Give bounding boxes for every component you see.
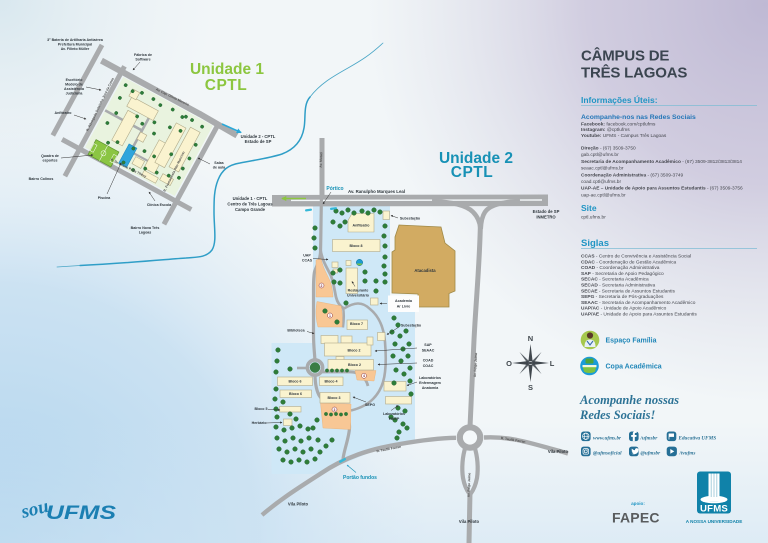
svg-text:Educativa UFMS: Educativa UFMS (678, 436, 717, 442)
svg-text:Clínica Escola: Clínica Escola (147, 203, 172, 207)
svg-text:CDAC - Coordenação de Gestão A: CDAC - Coordenação de Gestão Acadêmica (581, 259, 677, 265)
svg-text:Anatomia: Anatomia (422, 386, 439, 390)
svg-text:/tvufms: /tvufms (679, 451, 696, 457)
svg-text:Site: Site (581, 203, 597, 213)
svg-text:Academia: Academia (395, 299, 413, 303)
svg-text:3: 3 (334, 408, 336, 412)
svg-text:Redes Sociais!: Redes Sociais! (579, 408, 655, 422)
svg-text:Vila Piloto: Vila Piloto (459, 519, 480, 524)
svg-text:Direção - (67) 3509-3750: Direção - (67) 3509-3750 (581, 146, 636, 152)
svg-text:O: O (506, 359, 512, 368)
svg-text:Bairro Colinos: Bairro Colinos (29, 177, 54, 181)
svg-text:Bloco 2: Bloco 2 (348, 349, 361, 353)
svg-text:Facebook: facebook.com/cptlufm: Facebook: facebook.com/cptlufms (581, 122, 656, 128)
svg-text:4: 4 (363, 374, 365, 378)
svg-text:coad.cptl@ufms.br: coad.cptl@ufms.br (581, 179, 621, 185)
svg-text:TRÊS LAGOAS: TRÊS LAGOAS (581, 64, 687, 82)
svg-text:Assistência: Assistência (64, 87, 85, 91)
svg-text:Anfiteatro: Anfiteatro (55, 111, 73, 115)
svg-text:SAP - Secretaria de Apoio Peda: SAP - Secretaria de Apoio Pedagógico (581, 271, 664, 277)
svg-text:seaac.cptl@ufms.br: seaac.cptl@ufms.br (581, 166, 624, 172)
svg-text:Bloco 7: Bloco 7 (350, 322, 363, 326)
svg-text:Espaço Família: Espaço Família (606, 338, 657, 345)
svg-text:Acompanhe nossas: Acompanhe nossas (579, 393, 679, 407)
svg-text:Vila Piloto: Vila Piloto (288, 502, 309, 507)
svg-text:UAP/AC - Unidade de Apoio Acad: UAP/AC - Unidade de Apoio Acadêmico (581, 306, 667, 312)
svg-text:Bloco 8: Bloco 8 (350, 244, 363, 248)
svg-text:Av. Mutati: Av. Mutati (319, 152, 324, 168)
svg-text:esportes: esportes (43, 159, 58, 163)
svg-text:Acompanhe-nos nas Redes Sociai: Acompanhe-nos nas Redes Sociais (581, 114, 696, 121)
svg-text:Estado de SP: Estado de SP (245, 139, 272, 144)
svg-text:Bairro Nova Três: Bairro Nova Três (131, 226, 160, 230)
svg-text:Bloco 6: Bloco 6 (289, 380, 302, 384)
svg-text:SEPG - Secretaria de Pós-gradu: SEPG - Secretaria de Pós-graduações (581, 294, 664, 300)
svg-text:SEPG: SEPG (365, 403, 375, 407)
svg-text:Coordenação Administrativa - (: Coordenação Administrativa - (67) 3509-3… (581, 172, 684, 178)
svg-text:Herbário: Herbário (252, 421, 268, 425)
svg-text:Prefeitura Municipal: Prefeitura Municipal (58, 43, 92, 47)
svg-text:Universitário: Universitário (347, 294, 370, 298)
svg-text:L: L (550, 359, 555, 368)
svg-text:Unidade 1: Unidade 1 (190, 61, 264, 78)
svg-text:Lagoas: Lagoas (139, 231, 152, 235)
svg-text:uap-ae.cptl@ufms.br: uap-ae.cptl@ufms.br (581, 192, 626, 198)
svg-text:SECAD - Secretaria Administrat: SECAD - Secretaria Administrativa (581, 283, 655, 289)
svg-text:Laboratórios: Laboratórios (383, 412, 405, 416)
svg-text:COAD - Coordenação Administrat: COAD - Coordenação Administrativa (581, 265, 660, 271)
svg-text:Enfermagem: Enfermagem (419, 381, 441, 385)
svg-text:FINEP: FINEP (389, 417, 400, 421)
svg-text:N: N (528, 334, 533, 343)
svg-text:Pórtico: Pórtico (326, 186, 343, 192)
svg-text:UFMS: UFMS (46, 503, 116, 524)
svg-text:Bloco 6: Bloco 6 (289, 392, 302, 396)
svg-text:apoio:: apoio: (631, 501, 645, 506)
svg-text:1: 1 (329, 314, 331, 318)
svg-text:Secretaria de Acompanhamento A: Secretaria de Acompanhamento Acadêmico -… (581, 159, 742, 165)
svg-text:CPTL: CPTL (451, 164, 493, 181)
svg-text:Anfiteatro: Anfiteatro (353, 224, 371, 228)
svg-text:gab.cptl@ufms.br: gab.cptl@ufms.br (581, 152, 619, 158)
svg-text:Bloco 4: Bloco 4 (325, 380, 338, 384)
svg-text:Judiciária: Judiciária (66, 92, 84, 96)
svg-text:Instagram: @cptlufms: Instagram: @cptlufms (581, 127, 630, 133)
svg-text:Campo Grande: Campo Grande (235, 207, 266, 212)
svg-text:Biblioteca: Biblioteca (287, 329, 305, 333)
svg-text:Modelo de: Modelo de (65, 83, 83, 87)
svg-text:Av. Ranulpho Marques Leal: Av. Ranulpho Marques Leal (348, 189, 405, 194)
svg-text:2: 2 (321, 284, 323, 288)
svg-text:COAC: COAC (423, 364, 434, 368)
svg-text:@ufmsbr: @ufmsbr (641, 451, 662, 457)
svg-text:/ufmsbr: /ufmsbr (640, 436, 659, 442)
svg-text:Portão fundos: Portão fundos (343, 475, 377, 481)
svg-text:Atacadista: Atacadista (414, 268, 436, 273)
svg-text:cptl.ufms.br: cptl.ufms.br (581, 215, 606, 221)
svg-text:Bloco 2: Bloco 2 (348, 363, 361, 367)
svg-text:UAP: UAP (303, 254, 311, 258)
svg-text:INMETRO: INMETRO (536, 215, 556, 220)
svg-text:CÂMPUS DE: CÂMPUS DE (581, 47, 669, 65)
svg-text:FAPEC: FAPEC (612, 510, 660, 526)
svg-text:Salas: Salas (214, 161, 223, 165)
svg-text:COAD: COAD (423, 359, 434, 363)
svg-text:CPTL: CPTL (205, 77, 247, 94)
svg-text:Bloco 5: Bloco 5 (255, 407, 268, 411)
svg-text:Ar Livre: Ar Livre (397, 305, 411, 309)
svg-text:Fábrica de: Fábrica de (134, 53, 152, 57)
svg-text:SEAAC: SEAAC (422, 349, 435, 353)
svg-text:Quadra de: Quadra de (41, 154, 59, 158)
svg-text:SECAE - Secretaria de Assuntos: SECAE - Secretaria de Assuntos Estudanti… (581, 288, 675, 294)
svg-text:S: S (528, 383, 533, 392)
svg-text:Piscina: Piscina (98, 196, 112, 200)
svg-text:Subestação: Subestação (400, 217, 421, 221)
svg-text:Escritório: Escritório (66, 78, 84, 82)
svg-text:Centro de Três Lagoas: Centro de Três Lagoas (227, 202, 273, 207)
svg-text:Laboratórios: Laboratórios (419, 376, 441, 380)
svg-text:Copa Acadêmica: Copa Acadêmica (606, 364, 662, 371)
svg-text:A NOSSA UNIVERSIDADE: A NOSSA UNIVERSIDADE (686, 519, 743, 524)
svg-text:Youtube: UFMS - Campus Três La: Youtube: UFMS - Campus Três Lagoas (581, 133, 667, 139)
svg-text:Restaurante: Restaurante (348, 289, 369, 293)
svg-text:SEAAC - Secretaria de Acompanh: SEAAC - Secretaria de Acompanhamento Aca… (581, 300, 696, 306)
svg-text:SECAC - Secretaria Acadêmica: SECAC - Secretaria Acadêmica (581, 277, 649, 283)
svg-text:Unidade 1 - CPTL: Unidade 1 - CPTL (233, 196, 268, 201)
svg-text:Estado de SP: Estado de SP (533, 209, 560, 214)
svg-text:@ufmsoficial: @ufmsoficial (593, 451, 622, 457)
svg-text:UFMS: UFMS (700, 504, 728, 515)
svg-text:Siglas: Siglas (581, 238, 609, 249)
svg-text:www.ufms.br: www.ufms.br (593, 436, 622, 442)
svg-text:Software: Software (135, 58, 150, 62)
svg-text:UAP/AE - Unidade de Apoio para: UAP/AE - Unidade de Apoio para Assuntes … (581, 312, 697, 318)
svg-text:Vila Piloto: Vila Piloto (548, 449, 569, 454)
svg-text:3° Bateria de Artilharia Antia: 3° Bateria de Artilharia Antiaérea (47, 38, 104, 42)
svg-text:de aula: de aula (213, 166, 226, 170)
svg-text:Bloco 3: Bloco 3 (328, 396, 341, 400)
svg-text:Av. Filinto Müller: Av. Filinto Müller (61, 47, 90, 51)
svg-text:SAP: SAP (424, 343, 432, 347)
svg-text:CCAS - Centro de Convivência e: CCAS - Centro de Convivência e Assistênc… (581, 254, 691, 260)
svg-text:Informações Úteis:: Informações Úteis: (581, 94, 658, 105)
svg-text:CCAS: CCAS (302, 259, 313, 263)
svg-text:Subestação: Subestação (401, 324, 422, 328)
svg-text:UAP-AE – Unidade de Apoio para: UAP-AE – Unidade de Apoio para Assuntos … (581, 186, 743, 192)
